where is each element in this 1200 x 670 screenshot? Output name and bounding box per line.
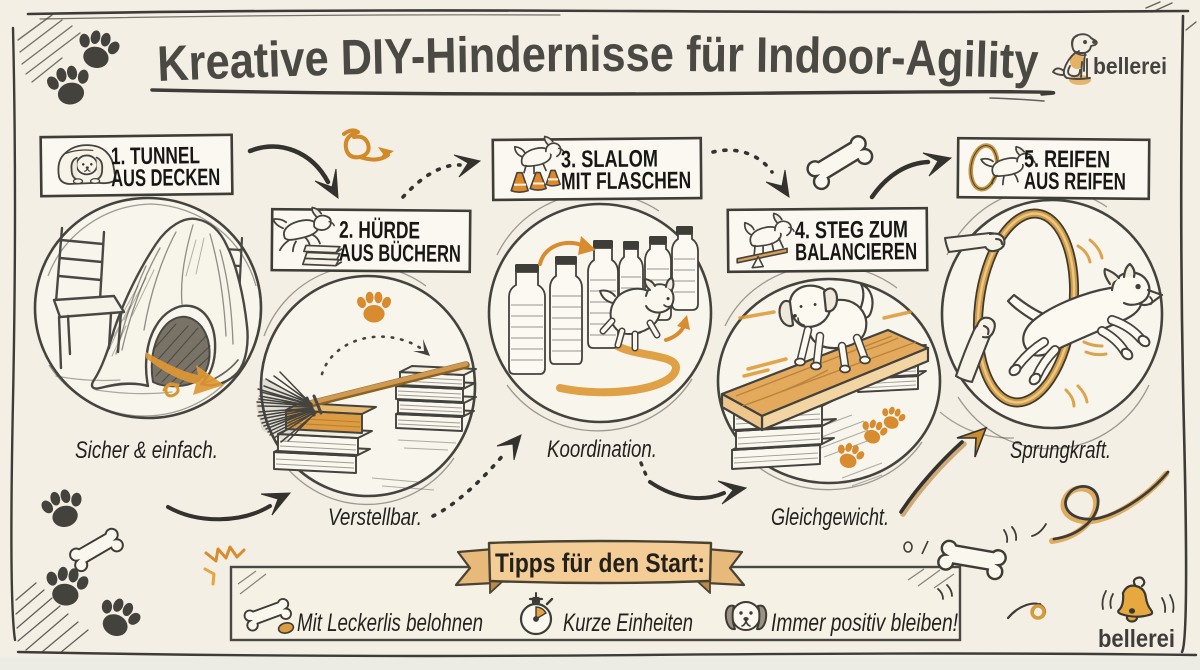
svg-text:AUS REIFEN: AUS REIFEN bbox=[1024, 168, 1126, 196]
svg-text:Sprungkraft.: Sprungkraft. bbox=[1010, 437, 1111, 464]
svg-text:BALANCIEREN: BALANCIEREN bbox=[795, 238, 917, 266]
svg-text:Verstellbar.: Verstellbar. bbox=[328, 504, 422, 531]
svg-text:Tipps für den Start:: Tipps für den Start: bbox=[495, 548, 705, 578]
svg-text:Sicher & einfach.: Sicher & einfach. bbox=[75, 437, 218, 464]
svg-text:MIT FLASCHEN: MIT FLASCHEN bbox=[561, 167, 691, 195]
svg-text:Koordination.: Koordination. bbox=[547, 436, 657, 463]
svg-text:AUS DECKEN: AUS DECKEN bbox=[111, 164, 220, 192]
svg-text:AUS BÜCHERN: AUS BÜCHERN bbox=[339, 240, 461, 268]
svg-text:Gleichgewicht.: Gleichgewicht. bbox=[771, 504, 889, 531]
svg-text:bellerei: bellerei bbox=[1098, 625, 1175, 653]
svg-text:Immer positiv bleiben!: Immer positiv bleiben! bbox=[771, 609, 958, 637]
svg-text:bellerei: bellerei bbox=[1093, 53, 1167, 79]
svg-text:Kurze Einheiten: Kurze Einheiten bbox=[563, 609, 693, 637]
svg-text:Mit Leckerlis belohnen: Mit Leckerlis belohnen bbox=[297, 609, 483, 637]
